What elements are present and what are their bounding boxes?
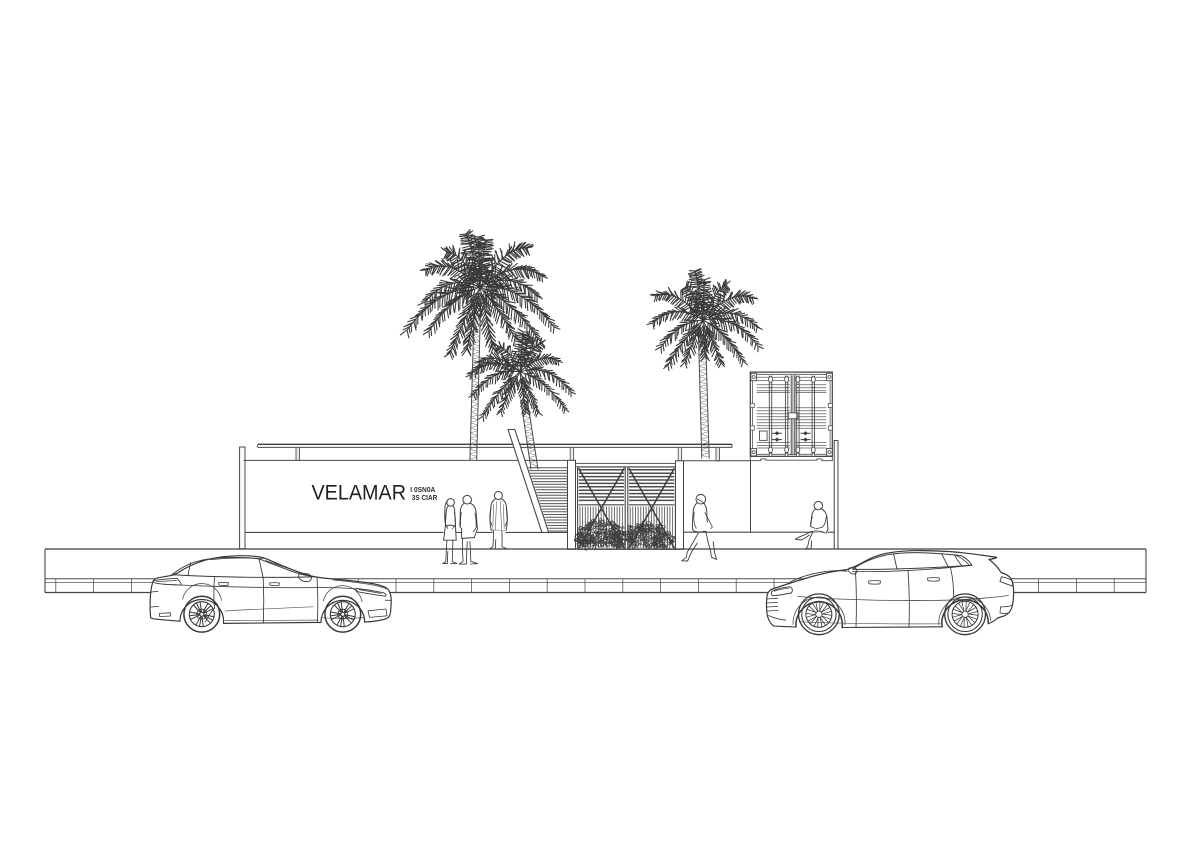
svg-text:3S CIAR: 3S CIAR [412, 493, 438, 502]
svg-text:VELAMAR: VELAMAR [312, 481, 407, 504]
